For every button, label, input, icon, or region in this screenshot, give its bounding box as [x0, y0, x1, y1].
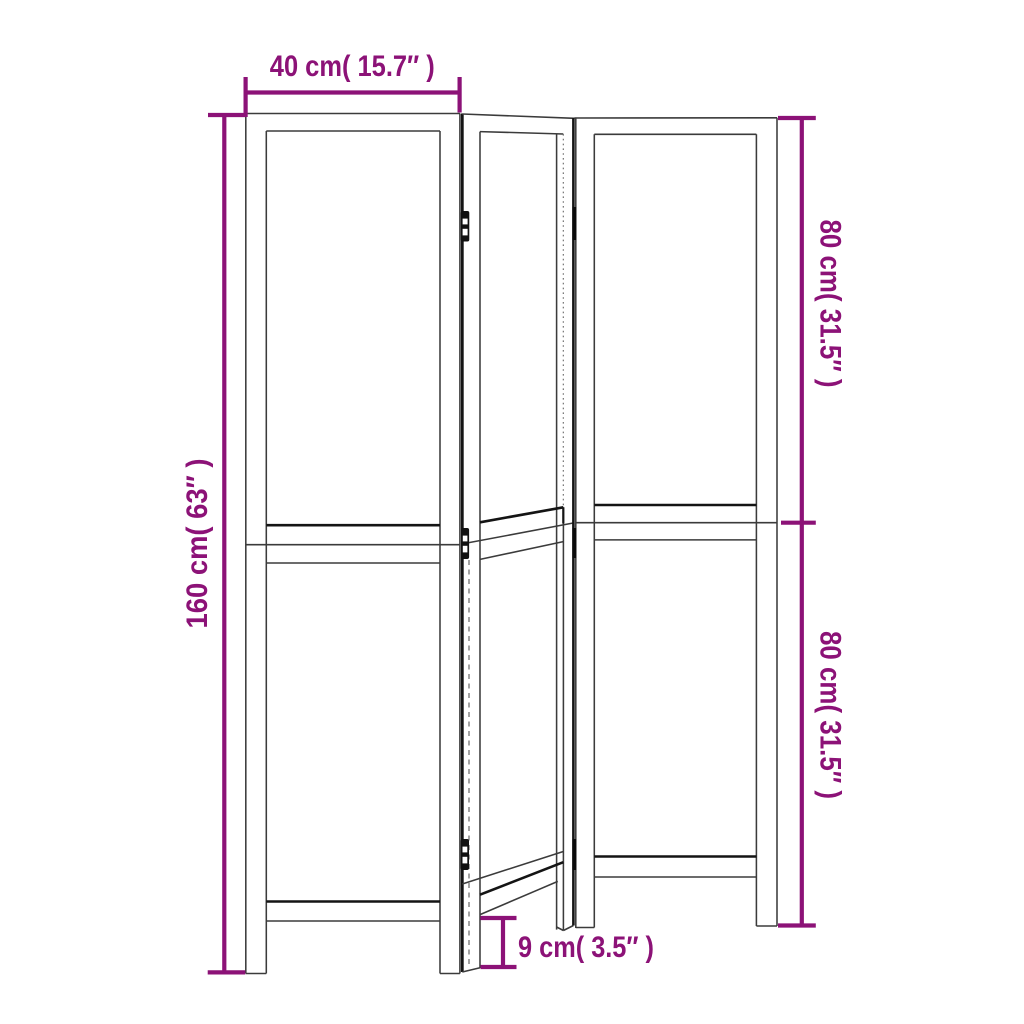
svg-text:80 cm( 31.5″ ): 80 cm( 31.5″ ): [814, 631, 847, 799]
svg-text:80 cm( 31.5″ ): 80 cm( 31.5″ ): [814, 220, 847, 388]
svg-text:160 cm( 63″ ): 160 cm( 63″ ): [181, 459, 214, 629]
svg-text:9 cm( 3.5″ ): 9 cm( 3.5″ ): [518, 931, 654, 964]
svg-text:40 cm( 15.7″ ): 40 cm( 15.7″ ): [270, 50, 435, 83]
